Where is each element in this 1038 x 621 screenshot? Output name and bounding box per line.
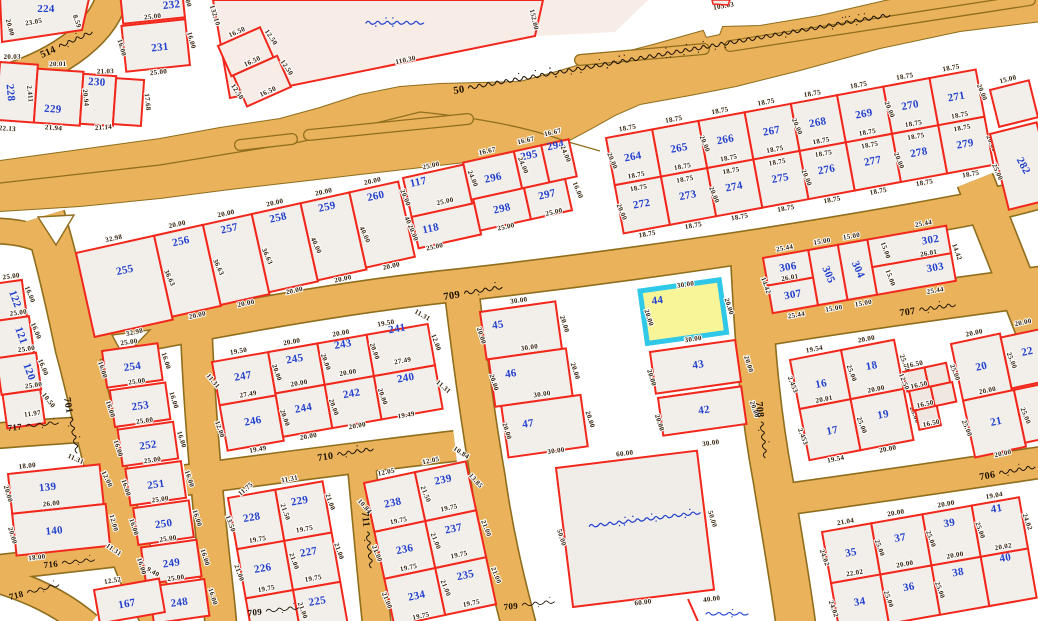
- svg-text:22.13: 22.13: [0, 124, 16, 133]
- svg-text:20.01: 20.01: [49, 60, 67, 68]
- svg-text:224: 224: [37, 3, 55, 15]
- svg-text:34: 34: [853, 595, 867, 609]
- svg-text:251: 251: [146, 478, 165, 492]
- svg-text:253: 253: [131, 399, 150, 413]
- svg-text:231: 231: [151, 41, 170, 55]
- svg-text:40: 40: [999, 551, 1013, 565]
- svg-text:20.03: 20.03: [4, 53, 22, 61]
- svg-text:711: 711: [359, 511, 372, 527]
- svg-text:230: 230: [88, 76, 106, 89]
- svg-text:21: 21: [989, 415, 1003, 429]
- svg-text:229: 229: [44, 103, 62, 116]
- svg-text:16: 16: [814, 377, 828, 391]
- svg-text:37: 37: [893, 531, 907, 545]
- svg-text:50: 50: [453, 84, 466, 97]
- svg-text:45: 45: [491, 318, 504, 332]
- svg-text:36: 36: [902, 580, 916, 594]
- svg-text:250: 250: [154, 517, 173, 531]
- svg-text:252: 252: [139, 438, 158, 452]
- svg-text:41: 41: [990, 502, 1004, 516]
- svg-text:18: 18: [865, 359, 879, 373]
- svg-text:39: 39: [943, 516, 957, 530]
- svg-text:43: 43: [692, 358, 705, 372]
- svg-text:44: 44: [651, 294, 664, 308]
- svg-text:254: 254: [123, 360, 142, 374]
- svg-text:228: 228: [3, 83, 17, 102]
- svg-text:708: 708: [753, 401, 766, 418]
- svg-text:717: 717: [7, 422, 23, 433]
- svg-text:21.94: 21.94: [45, 123, 63, 132]
- svg-text:35: 35: [844, 546, 858, 560]
- svg-text:707: 707: [899, 306, 916, 319]
- svg-text:17: 17: [825, 424, 839, 438]
- svg-text:42: 42: [698, 403, 711, 417]
- svg-text:139: 139: [38, 481, 57, 495]
- svg-text:709: 709: [503, 601, 519, 612]
- svg-text:46: 46: [504, 367, 517, 381]
- svg-text:248: 248: [170, 596, 189, 610]
- svg-text:140: 140: [45, 524, 64, 538]
- svg-text:19: 19: [876, 408, 890, 422]
- svg-text:249: 249: [162, 556, 181, 570]
- svg-text:232: 232: [162, 0, 181, 12]
- svg-text:47: 47: [521, 417, 534, 431]
- svg-text:38: 38: [951, 566, 965, 580]
- svg-text:21.14: 21.14: [95, 123, 113, 132]
- svg-text:709: 709: [247, 607, 263, 618]
- svg-text:716: 716: [43, 559, 59, 570]
- svg-text:21.03: 21.03: [97, 67, 115, 75]
